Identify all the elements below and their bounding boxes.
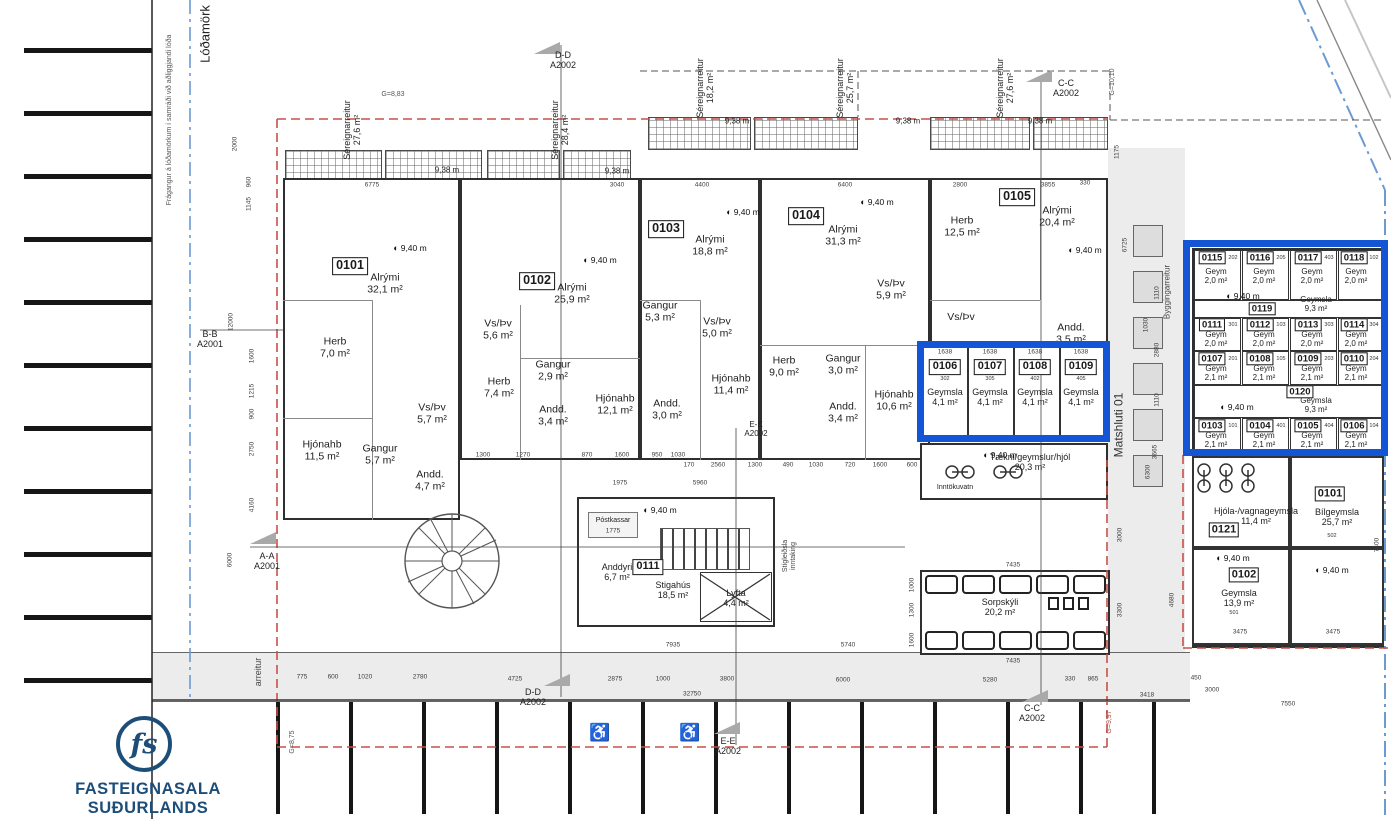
level-icon: ◐ bbox=[583, 255, 588, 265]
room-label: Vs/Þv 5,6 m² bbox=[483, 318, 513, 342]
room-label: Herb 9,0 m² bbox=[769, 355, 799, 379]
dim-label: 960 bbox=[245, 177, 252, 188]
level-label: 9,40 m bbox=[401, 243, 427, 253]
dim-label: 6000 bbox=[226, 553, 233, 567]
waste-bin bbox=[999, 631, 1032, 650]
room-label: Lyfta 4,4 m² bbox=[723, 588, 749, 608]
apartment-number: 0101 bbox=[332, 257, 368, 275]
arreitur-label: arreitur bbox=[253, 658, 263, 687]
site-plan: Lóðamörk Frágangur á lóðamörkum í samráð… bbox=[0, 0, 1391, 819]
terrace-width-label: 9,38 m bbox=[725, 118, 749, 127]
dim-label: 4680 bbox=[1168, 593, 1175, 607]
room-label: Hjónahb 11,5 m² bbox=[302, 439, 341, 463]
dim-label: 450 bbox=[1191, 674, 1202, 681]
highlight-box-annex bbox=[1183, 240, 1388, 456]
realtor-logo: fs bbox=[116, 716, 172, 772]
dim-label: 3040 bbox=[610, 181, 624, 188]
dim-label: 3000 bbox=[1116, 528, 1123, 542]
dim-label: 4725 bbox=[508, 675, 522, 682]
section-marker: C-C A2002 bbox=[1053, 78, 1079, 98]
level-icon: ◐ bbox=[1068, 245, 1073, 255]
level-label: 9,40 m bbox=[1076, 245, 1102, 255]
bike-storage-room bbox=[1192, 456, 1290, 548]
dim-label: 5960 bbox=[693, 479, 707, 486]
room-label: Andd. 3,4 m² bbox=[828, 401, 858, 425]
dim-label: 4160 bbox=[248, 498, 255, 512]
dim-label: 6000 bbox=[836, 676, 850, 683]
terrace bbox=[754, 117, 858, 150]
dim-label: 1000 bbox=[656, 675, 670, 682]
dim-label: 1600 bbox=[248, 349, 255, 363]
inntak-label: Inntökuvatn bbox=[937, 484, 973, 492]
dim-label: 7400 bbox=[1373, 538, 1380, 552]
waste-container bbox=[1048, 597, 1059, 610]
room-label: Vs/Þv 5,9 m² bbox=[876, 278, 906, 302]
terrace bbox=[285, 150, 382, 181]
dim-label: 1030 bbox=[1142, 318, 1149, 332]
dim-label: 1110 bbox=[1153, 286, 1160, 300]
section-triangle bbox=[714, 722, 740, 734]
dim-label: 1030 bbox=[809, 461, 823, 468]
dim-label: 7550 bbox=[1281, 700, 1295, 707]
level-icon: ◐ bbox=[983, 450, 988, 460]
terrace-width-label: 9,38 m bbox=[605, 168, 629, 177]
annex-unit-sub: 501 bbox=[1229, 610, 1238, 616]
dim-label: 3475 bbox=[1233, 628, 1247, 635]
dim-label: 6775 bbox=[365, 181, 379, 188]
waste-bin bbox=[925, 631, 958, 650]
room-label: Alrými 32,1 m² bbox=[367, 272, 403, 296]
waste-bin bbox=[1073, 575, 1106, 594]
waste-bin bbox=[925, 575, 958, 594]
dim-label: 7935 bbox=[666, 641, 680, 648]
dim-label: 1175 bbox=[1113, 145, 1120, 159]
dim-label: 1300 bbox=[908, 603, 915, 617]
parking-slot bbox=[1133, 225, 1163, 257]
room-label: Gangur 3,0 m² bbox=[825, 353, 860, 377]
dim-label: 7435 bbox=[1006, 657, 1020, 664]
highlight-box-storage-strip bbox=[917, 341, 1110, 442]
level-label: 9,40 m bbox=[651, 505, 677, 515]
dim-label: 32750 bbox=[683, 690, 701, 697]
section-marker: A-A A2001 bbox=[254, 551, 280, 571]
terrace-width-label: 9,38 m bbox=[435, 167, 459, 176]
dim-label: 7435 bbox=[1006, 561, 1020, 568]
room-label: Herb 7,0 m² bbox=[320, 336, 350, 360]
dim-label: 1775 bbox=[606, 527, 620, 534]
elevation-note: G=8,83 bbox=[381, 91, 404, 99]
room-label: Hjónahb 11,4 m² bbox=[711, 373, 750, 397]
apartment-number: 0102 bbox=[519, 272, 555, 290]
dim-label: 775 bbox=[297, 673, 308, 680]
dim-label: 1300 bbox=[476, 451, 490, 458]
level-label: 9,40 m bbox=[868, 197, 894, 207]
room-label: Vs/Þv 5,0 m² bbox=[702, 316, 732, 340]
level-icon: ◐ bbox=[1216, 553, 1221, 563]
terrace-width-label: 9,38 m bbox=[896, 118, 920, 127]
dim-label: 1300 bbox=[748, 461, 762, 468]
apartment-number: 0103 bbox=[648, 220, 684, 238]
terrace bbox=[385, 150, 482, 181]
room-label: Alrými 25,9 m² bbox=[554, 282, 590, 306]
dim-label: 1145 bbox=[245, 197, 252, 211]
dim-label: 1600 bbox=[908, 633, 915, 647]
room-label: Geymsla 13,9 m² bbox=[1221, 588, 1257, 608]
sereign-label: Séreignarreitur 27,6 m² bbox=[995, 58, 1015, 118]
dim-label: 1110 bbox=[1153, 393, 1160, 407]
dim-label: 3300 bbox=[1116, 603, 1123, 617]
byggingarreitur-label: Byggingarreitur bbox=[1164, 265, 1173, 319]
dim-label: 5280 bbox=[983, 676, 997, 683]
sereign-label: Séreignarreitur 28,4 m² bbox=[550, 100, 570, 160]
room-label: Alrými 31,3 m² bbox=[825, 224, 861, 248]
level-label: 9,40 m bbox=[591, 255, 617, 265]
section-marker: B-B A2001 bbox=[197, 329, 223, 349]
sereign-label: Séreignarreitur 18,2 m² bbox=[695, 58, 715, 118]
dim-label: 1600 bbox=[873, 461, 887, 468]
dim-label: 1270 bbox=[516, 451, 530, 458]
dim-label: 490 bbox=[783, 461, 794, 468]
dim-label: 3855 bbox=[1041, 181, 1055, 188]
room-label: Anddyri 6,7 m² bbox=[602, 562, 633, 582]
dim-label: 2780 bbox=[413, 673, 427, 680]
dim-label: 330 bbox=[1080, 179, 1091, 186]
dim-label: 6300 bbox=[1144, 465, 1151, 479]
dim-label: 2560 bbox=[711, 461, 725, 468]
room-label: Herb 12,5 m² bbox=[944, 215, 980, 239]
room-label: Vs/Þv bbox=[947, 312, 974, 324]
dim-label: 6400 bbox=[838, 181, 852, 188]
annex-unit-number: 0121 bbox=[1209, 522, 1239, 537]
room-label: Gangur 2,9 m² bbox=[535, 359, 570, 383]
dim-label: 1030 bbox=[671, 451, 685, 458]
room-label: Herb 7,4 m² bbox=[484, 376, 514, 400]
dim-label: 3000 bbox=[1205, 686, 1219, 693]
street-parking-stripes bbox=[24, 48, 152, 708]
dim-label: 3800 bbox=[720, 675, 734, 682]
waste-bin bbox=[1036, 631, 1069, 650]
level-icon: ◐ bbox=[860, 197, 865, 207]
lodamork-label: Lóðamörk bbox=[199, 5, 214, 63]
dim-label: 900 bbox=[248, 409, 255, 420]
waste-bin bbox=[999, 575, 1032, 594]
section-marker: C-C A2002 bbox=[1019, 703, 1045, 723]
annex-unit-number: 0101 bbox=[1315, 486, 1345, 501]
waste-container bbox=[1078, 597, 1089, 610]
dim-label: 720 bbox=[845, 461, 856, 468]
matshluti-label: Matshluti 01 bbox=[1112, 393, 1125, 458]
dim-label: 1000 bbox=[908, 578, 915, 592]
taekni-label: Tækni/geymslur/hjól 20,3 m² bbox=[990, 452, 1071, 472]
room-label: Hjónahb 12,1 m² bbox=[595, 393, 634, 417]
room-label: Andd. 3,0 m² bbox=[652, 398, 682, 422]
room-label: Andd. 3,4 m² bbox=[538, 404, 568, 428]
room-label: Gangur 5,7 m² bbox=[362, 443, 397, 467]
apartment-number: 0104 bbox=[788, 207, 824, 225]
boundary-note: Frágangur á lóðamörkum í samráði við aðl… bbox=[166, 35, 174, 206]
elevation-note: G=8,75 bbox=[289, 730, 297, 753]
terrace bbox=[930, 117, 1030, 150]
section-marker: D-D A2002 bbox=[550, 50, 576, 70]
room-label: Gangur 5,3 m² bbox=[642, 300, 677, 324]
dim-label: 5740 bbox=[841, 641, 855, 648]
dim-label: 3475 bbox=[1326, 628, 1340, 635]
level-icon: ◐ bbox=[643, 505, 648, 515]
room-label: Andd. 4,7 m² bbox=[415, 469, 445, 493]
accessible-parking-icon: ♿ bbox=[679, 723, 700, 743]
room-label: Hjónahb 10,6 m² bbox=[874, 389, 913, 413]
section-triangle bbox=[1026, 70, 1052, 82]
section-marker: D-D A2002 bbox=[520, 687, 546, 707]
dim-label: 600 bbox=[328, 673, 339, 680]
dim-label: 2880 bbox=[1153, 343, 1160, 357]
apartment-number: 0105 bbox=[999, 188, 1035, 206]
level-icon: ◐ bbox=[1315, 565, 1320, 575]
car-storage-room bbox=[1290, 456, 1384, 548]
annex-unit-sub: 502 bbox=[1327, 533, 1336, 539]
elevation-note: G=10,10 bbox=[1109, 68, 1117, 95]
sorpskyli-label: Sorpskýli 20,2 m² bbox=[982, 597, 1019, 617]
room-label: Alrými 18,8 m² bbox=[692, 234, 728, 258]
dim-label: 2000 bbox=[231, 137, 238, 151]
parking-slot bbox=[1133, 409, 1163, 441]
dim-label: 6725 bbox=[1121, 238, 1128, 252]
level-label: 9,40 m bbox=[1323, 565, 1349, 575]
dim-label: 2875 bbox=[608, 675, 622, 682]
dim-label: 2750 bbox=[248, 442, 255, 456]
room-label: Bílgeymsla 25,7 m² bbox=[1315, 507, 1359, 527]
waste-bin bbox=[1036, 575, 1069, 594]
dim-label: 4400 bbox=[695, 181, 709, 188]
level-icon: ◐ bbox=[726, 207, 731, 217]
parking-slot bbox=[1133, 363, 1163, 395]
stair-unit-number: 0111 bbox=[632, 559, 663, 575]
section-marker: E-E A2002 bbox=[744, 421, 767, 439]
sereign-label: Séreignarreitur 27,6 m² bbox=[342, 100, 362, 160]
section-triangle bbox=[544, 674, 570, 686]
realtor-name: FASTEIGNASALA SUÐURLANDS bbox=[28, 780, 268, 818]
dim-label: 1600 bbox=[615, 451, 629, 458]
dim-label: 330 bbox=[1065, 675, 1076, 682]
dim-label: 1215 bbox=[248, 384, 255, 398]
elevation-note: G=9,97 bbox=[1106, 710, 1114, 733]
annex-unit-number: 0102 bbox=[1229, 567, 1259, 582]
waste-bin bbox=[1073, 631, 1106, 650]
room-label: Vs/Þv 5,7 m² bbox=[417, 402, 447, 426]
stair-treads bbox=[660, 528, 750, 570]
dim-label: 950 bbox=[652, 451, 663, 458]
waste-container bbox=[1063, 597, 1074, 610]
waste-bin bbox=[962, 631, 995, 650]
level-icon: ◐ bbox=[393, 243, 398, 253]
level-label: 9,40 m bbox=[1224, 553, 1250, 563]
dim-label: 3665 bbox=[1151, 445, 1158, 459]
mailbox-label: Póstkassar bbox=[596, 517, 631, 525]
room-label: Stigahús 18,5 m² bbox=[655, 580, 690, 600]
room-label: Alrými 20,4 m² bbox=[1039, 205, 1075, 229]
dim-label: 2800 bbox=[953, 181, 967, 188]
pipe-note: Stígleiðsla inntaking bbox=[782, 540, 798, 572]
accessible-parking-icon: ♿ bbox=[589, 723, 610, 743]
level-label: 9,40 m bbox=[734, 207, 760, 217]
sereign-label: Séreignarreitur 25,7 m² bbox=[835, 58, 855, 118]
dim-label: 1020 bbox=[358, 673, 372, 680]
terrace-width-label: 9,38 m bbox=[1028, 118, 1052, 127]
waste-bin bbox=[962, 575, 995, 594]
dim-label: 170 bbox=[684, 461, 695, 468]
lot-parking-stripes bbox=[276, 702, 1182, 814]
logo-monogram: fs bbox=[131, 729, 158, 760]
dim-label: 870 bbox=[582, 451, 593, 458]
section-triangle bbox=[1022, 690, 1048, 702]
dim-label: 12000 bbox=[227, 313, 234, 331]
section-triangle bbox=[250, 532, 276, 544]
dim-label: 865 bbox=[1088, 675, 1099, 682]
dim-label: 3418 bbox=[1140, 691, 1154, 698]
dim-label: 1975 bbox=[613, 479, 627, 486]
section-marker: E-E A2002 bbox=[715, 736, 741, 756]
dim-label: 600 bbox=[907, 461, 918, 468]
